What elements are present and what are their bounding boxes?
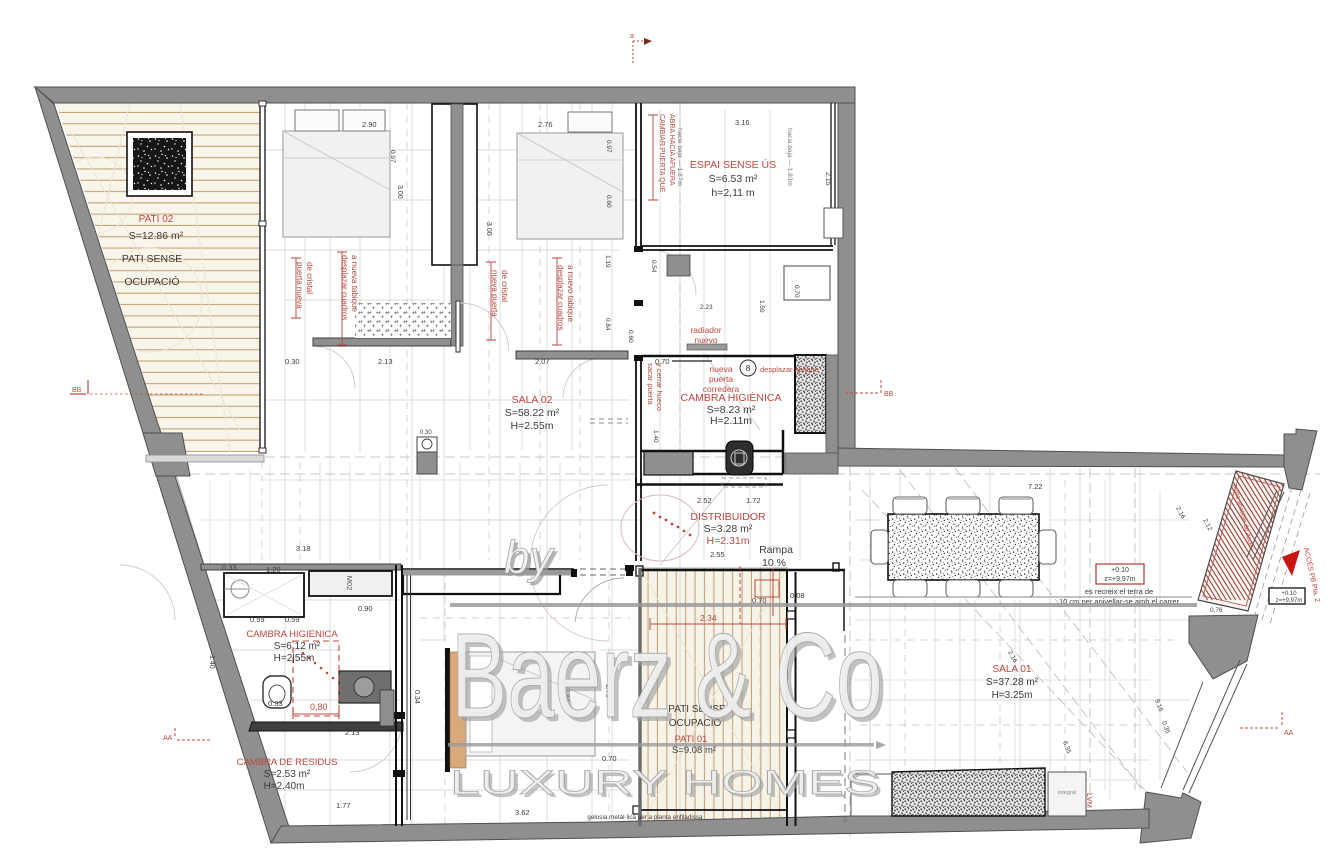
svg-text:0.97: 0.97 [605, 140, 612, 153]
svg-text:Baerz & Co: Baerz & Co [451, 607, 883, 743]
svg-text:0.33: 0.33 [268, 699, 283, 708]
svg-text:0.59: 0.59 [250, 615, 265, 624]
svg-text:desplazar cuadros: desplazar cuadros [556, 265, 565, 330]
svg-text:H=3.25m: H=3.25m [992, 690, 1033, 701]
svg-text:de cristal: de cristal [500, 270, 509, 302]
svg-text:hacia baja — 1.87m: hacia baja — 1.87m [676, 128, 683, 186]
svg-text:by: by [504, 531, 556, 583]
svg-text:H=2.40m: H=2.40m [264, 781, 305, 792]
svg-text:1.72: 1.72 [746, 496, 761, 505]
svg-text:7.22: 7.22 [1028, 482, 1043, 491]
svg-text:1.77: 1.77 [336, 801, 351, 810]
svg-text:SALA 02: SALA 02 [512, 394, 553, 406]
svg-text:0.08: 0.08 [790, 591, 805, 600]
svg-text:0.59: 0.59 [285, 615, 300, 624]
svg-text:PATI 02: PATI 02 [139, 214, 174, 225]
svg-text:nuevo: nuevo [694, 335, 717, 345]
svg-text:0.60: 0.60 [605, 195, 612, 208]
svg-text:integral: integral [1058, 790, 1076, 796]
svg-text:0.70: 0.70 [602, 754, 617, 763]
svg-text:0.97: 0.97 [389, 150, 396, 163]
svg-text:1.40: 1.40 [652, 430, 659, 443]
svg-text:S=37.28 m²: S=37.28 m² [986, 677, 1039, 688]
svg-text:hacia baja — 1.83m: hacia baja — 1.83m [786, 128, 793, 186]
svg-text:CAMBRA HIGIENICA: CAMBRA HIGIENICA [246, 629, 338, 640]
svg-text:+0.10: +0.10 [1281, 591, 1297, 597]
svg-text:0.30: 0.30 [420, 430, 432, 436]
svg-text:z=+9,97m: z=+9,97m [1104, 576, 1135, 583]
svg-text:2.52: 2.52 [697, 496, 712, 505]
svg-text:0.34: 0.34 [413, 690, 420, 704]
svg-text:10 %: 10 % [762, 557, 786, 569]
svg-text:ABRA HACIA AFUERA: ABRA HACIA AFUERA [668, 114, 675, 186]
svg-text:puerta: puerta [709, 374, 733, 384]
svg-text:z=+9,97m: z=+9,97m [1276, 598, 1303, 604]
svg-text:3.18: 3.18 [296, 544, 311, 553]
svg-text:2.55: 2.55 [710, 550, 725, 559]
svg-text:ESPAI SENSE ÚS: ESPAI SENSE ÚS [690, 158, 776, 171]
svg-text:AA: AA [163, 735, 173, 742]
svg-text:0.54: 0.54 [650, 260, 657, 273]
svg-text:H=2.55m: H=2.55m [511, 420, 554, 432]
svg-text:desplazar cuadros: desplazar cuadros [340, 255, 349, 320]
svg-text:radiador: radiador [690, 325, 721, 335]
svg-text:0.84: 0.84 [604, 318, 611, 331]
svg-text:H=2|55m: H=2|55m [274, 653, 315, 664]
svg-text:de cristal: de cristal [305, 262, 314, 294]
svg-text:PATI SENSE: PATI SENSE [122, 253, 182, 265]
svg-text:AA: AA [1284, 730, 1294, 737]
svg-text:DISTRIBUIDOR: DISTRIBUIDOR [690, 511, 766, 523]
svg-text:0.90: 0.90 [358, 604, 373, 613]
svg-text:S=6.53 m²: S=6.53 m² [709, 173, 758, 185]
svg-text:3.62: 3.62 [515, 808, 530, 817]
svg-text:nueva: nueva [709, 364, 732, 374]
svg-text:nueva puerta: nueva puerta [490, 270, 499, 317]
svg-text:0.70: 0.70 [655, 357, 670, 366]
svg-text:0,80: 0,80 [310, 702, 328, 712]
svg-text:3.00: 3.00 [396, 185, 403, 199]
svg-text:S=58.22 m²: S=58.22 m² [505, 407, 560, 419]
svg-text:2.15: 2.15 [824, 172, 831, 186]
svg-text:8: 8 [746, 364, 751, 373]
svg-text:LVM: LVM [1085, 793, 1094, 808]
svg-text:0,76: 0,76 [1210, 607, 1223, 614]
svg-text:desplazar aplique: desplazar aplique [760, 365, 819, 374]
svg-text:a nueva tabique: a nueva tabique [350, 255, 359, 312]
svg-text:OCUPACIÓ: OCUPACIÓ [124, 275, 179, 288]
svg-text:BB: BB [72, 387, 82, 394]
svg-text:1.20: 1.20 [266, 565, 281, 574]
svg-text:SALA 01: SALA 01 [993, 664, 1032, 675]
svg-text:H=2.11m: H=2.11m [710, 415, 752, 427]
svg-text:CAMBIAR PUERTA QUE: CAMBIAR PUERTA QUE [658, 114, 665, 193]
svg-text:0.33: 0.33 [222, 563, 237, 572]
svg-text:+0.10: +0.10 [1111, 567, 1129, 574]
svg-text:3.00: 3.00 [485, 222, 492, 236]
svg-text:M02: M02 [345, 576, 354, 591]
svg-text:3.16: 3.16 [735, 118, 750, 127]
svg-text:1.19: 1.19 [604, 255, 611, 268]
svg-text:0.60: 0.60 [627, 330, 634, 343]
svg-text:2.13: 2.13 [345, 728, 360, 737]
svg-text:0.70: 0.70 [793, 285, 800, 298]
svg-text:a nuevo tabique: a nuevo tabique [566, 265, 575, 322]
svg-text:S=6.12 m²: S=6.12 m² [274, 641, 321, 652]
svg-text:S=3.28 m²: S=3.28 m² [704, 523, 753, 535]
svg-text:a: a [630, 33, 634, 40]
svg-text:gelosia metàl·lica per a plant: gelosia metàl·lica per a planta enfiladi… [587, 814, 703, 821]
svg-text:H=2.31m: H=2.31m [707, 535, 750, 547]
svg-text:2.07: 2.07 [535, 357, 550, 366]
svg-text:BB: BB [884, 391, 894, 398]
svg-text:Rampa: Rampa [759, 544, 793, 556]
svg-text:1.40: 1.40 [208, 655, 215, 669]
svg-text:1.59: 1.59 [758, 300, 765, 313]
svg-text:S=2.53 m²: S=2.53 m² [264, 769, 311, 780]
svg-text:0.30: 0.30 [285, 357, 300, 366]
svg-text:2.90: 2.90 [362, 120, 377, 129]
svg-text:corredera: corredera [703, 384, 740, 394]
svg-text:S=12.86 m²: S=12.86 m² [129, 230, 184, 242]
svg-text:es recreix el terra de: es recreix el terra de [1085, 587, 1153, 596]
svg-text:y cerrar hueco: y cerrar hueco [655, 363, 664, 411]
svg-text:2.13: 2.13 [378, 357, 393, 366]
svg-text:sacar puerta: sacar puerta [646, 363, 655, 406]
svg-text:h=2,11 m: h=2,11 m [711, 187, 755, 199]
svg-text:puerta nueva: puerta nueva [295, 262, 304, 309]
svg-text:2.23: 2.23 [700, 304, 713, 311]
svg-text:CAMBRA DE RESIDUS: CAMBRA DE RESIDUS [237, 757, 338, 768]
svg-text:2.76: 2.76 [538, 120, 553, 129]
svg-text:LUXURY HOMES: LUXURY HOMES [450, 764, 880, 802]
